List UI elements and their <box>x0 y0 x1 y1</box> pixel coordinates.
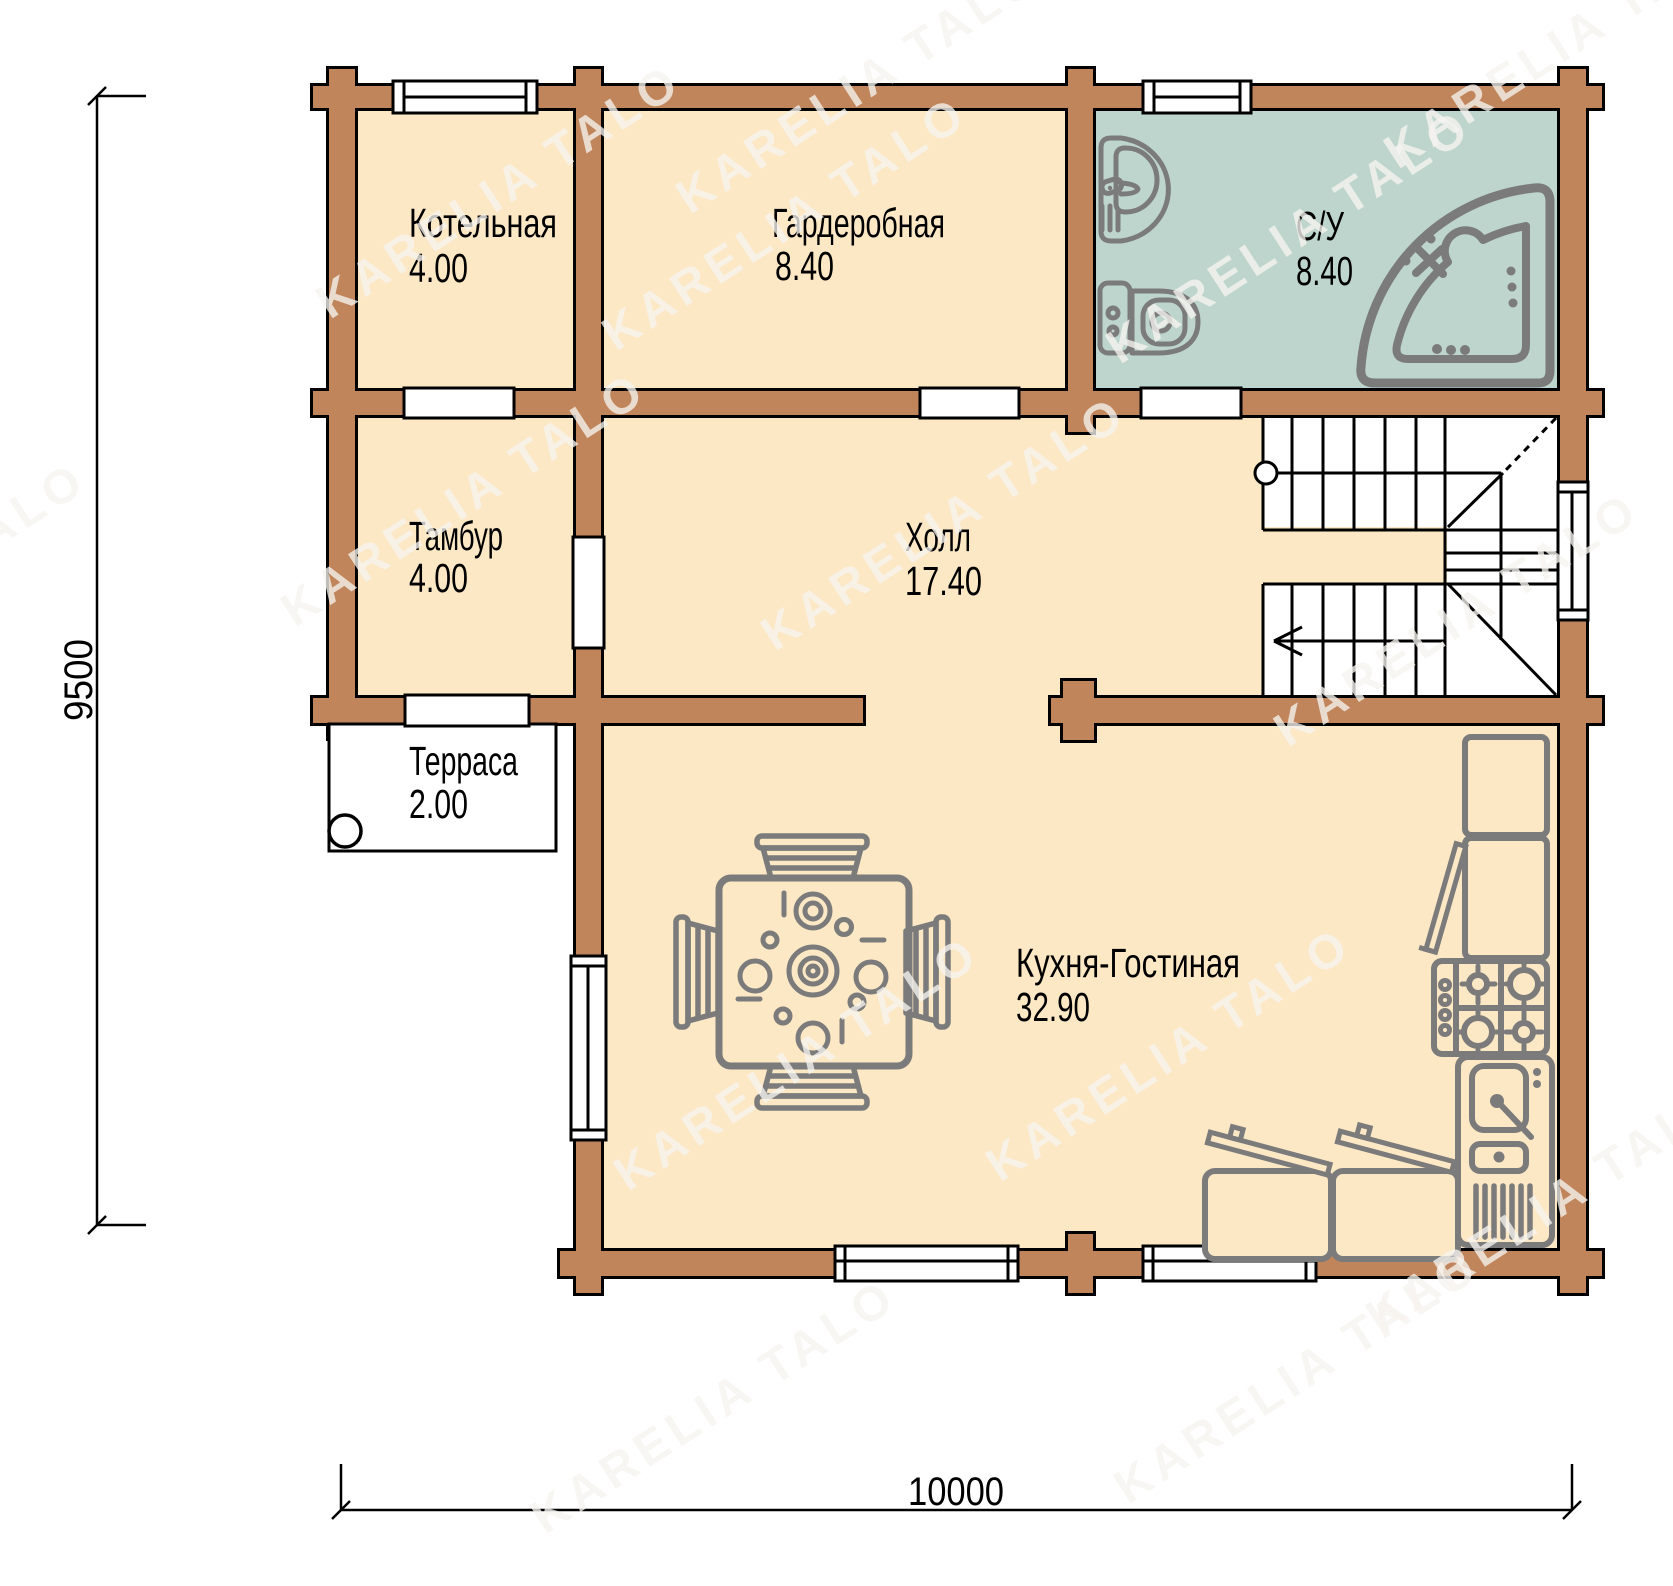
svg-text:10000: 10000 <box>908 1470 1004 1514</box>
svg-text:Кухня-Гостиная: Кухня-Гостиная <box>1016 940 1240 986</box>
svg-text:2.00: 2.00 <box>409 781 468 827</box>
svg-text:Терраса: Терраса <box>409 738 518 784</box>
svg-text:9500: 9500 <box>57 639 101 721</box>
svg-text:32.90: 32.90 <box>1016 984 1090 1030</box>
svg-text:4.00: 4.00 <box>409 555 468 601</box>
